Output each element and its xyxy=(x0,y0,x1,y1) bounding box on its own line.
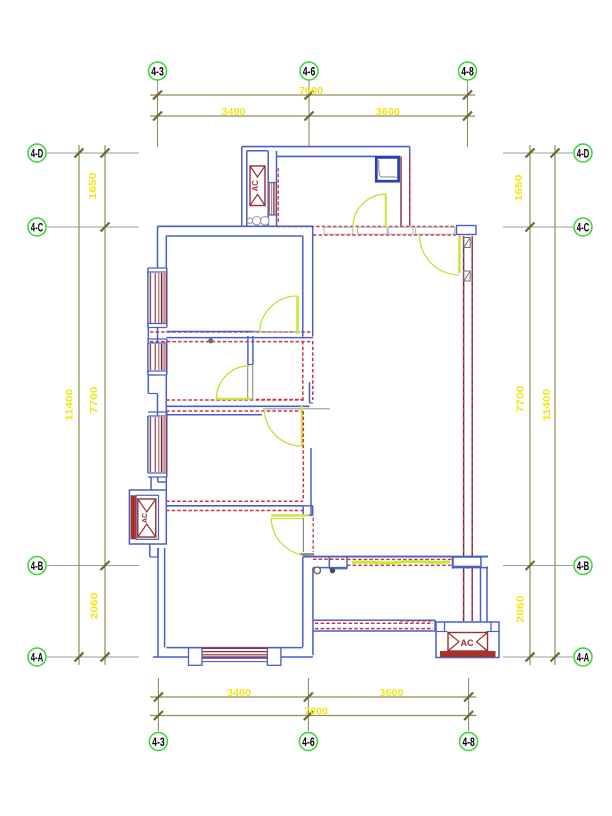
svg-text:1650: 1650 xyxy=(514,174,525,202)
svg-text:AC: AC xyxy=(250,180,260,191)
svg-text:4-D: 4-D xyxy=(577,146,590,160)
svg-text:4-B: 4-B xyxy=(577,559,590,573)
svg-text:4-A: 4-A xyxy=(31,650,44,664)
svg-text:2060: 2060 xyxy=(516,595,527,623)
svg-text:4-8: 4-8 xyxy=(462,735,475,749)
svg-text:11400: 11400 xyxy=(542,388,553,421)
svg-text:4-D: 4-D xyxy=(31,146,44,160)
svg-text:7000: 7000 xyxy=(299,86,323,97)
svg-text:4-3: 4-3 xyxy=(152,735,165,749)
svg-text:11400: 11400 xyxy=(65,388,76,421)
svg-text:3600: 3600 xyxy=(376,107,400,118)
svg-text:4-C: 4-C xyxy=(31,220,44,234)
svg-text:1650: 1650 xyxy=(88,172,99,200)
svg-text:AC: AC xyxy=(140,512,149,523)
svg-text:4-6: 4-6 xyxy=(303,64,316,78)
svg-text:7700: 7700 xyxy=(516,385,527,413)
svg-text:4-C: 4-C xyxy=(577,220,590,234)
svg-text:4-3: 4-3 xyxy=(151,64,164,78)
svg-text:7000: 7000 xyxy=(304,706,328,717)
svg-text:3600: 3600 xyxy=(380,688,404,699)
svg-text:4-8: 4-8 xyxy=(461,64,474,78)
svg-text:3400: 3400 xyxy=(227,688,251,699)
svg-text:7700: 7700 xyxy=(89,386,100,414)
svg-text:3400: 3400 xyxy=(222,107,246,118)
svg-text:2060: 2060 xyxy=(90,592,101,620)
svg-text:4-A: 4-A xyxy=(577,650,590,664)
svg-text:4-B: 4-B xyxy=(31,559,44,573)
svg-text:4-6: 4-6 xyxy=(302,735,315,749)
svg-text:AC: AC xyxy=(461,638,474,648)
